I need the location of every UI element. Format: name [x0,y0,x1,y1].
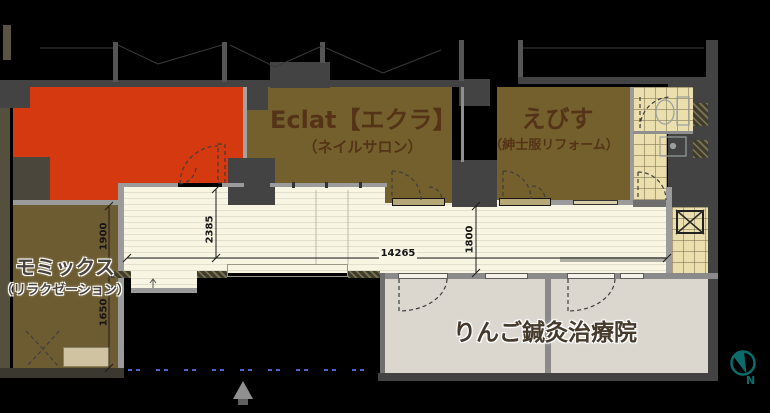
right-outer-wall [708,84,718,381]
ebisu-right-wall [630,87,634,203]
pillar-corridor-left [228,158,275,205]
clinic-bottom-wall [378,373,718,381]
wall-tick-3 [359,182,362,188]
momix-bottom-wall [0,368,124,378]
vacant-bottom-wall-a [124,183,178,187]
dim-corridor-width: 1800 [465,222,476,258]
wall-stub-e [518,40,523,77]
front-hatch-wall-b [197,271,227,278]
vacant-bottom-wall-b [222,183,244,187]
top-wall-mid [330,80,463,87]
pillar-left-mid [13,157,50,205]
entrance-marker-base [238,399,248,405]
right-outer-wall-top [706,40,718,84]
floor-plan: Eclat【エクラ】 （ネイルサロン） えびす （紳士服リフォーム） モミックス… [0,0,770,413]
wall-stub-a [113,42,118,82]
wall-tick-2 [325,182,328,188]
ebisu-door-sill [499,198,551,206]
momix-top-wall [13,200,120,205]
entrance-marker-triangle [233,381,253,399]
wall-stub-f [3,25,11,60]
compass-icon [732,352,755,375]
restroom-floor [633,87,693,133]
momix-category-label: （リラクゼーション） [0,279,132,298]
left-outer-wall [0,80,10,378]
compass-north-label: N [746,374,762,387]
eclat-bottom-wall [270,183,387,187]
restroom-partition [633,131,693,134]
top-wall-notch [270,62,330,88]
dim-corridor-length: 14265 [379,248,417,259]
eclat-door-sill [392,198,445,206]
window-lines [40,45,704,73]
corridor-elevator-divider [666,187,672,273]
dim-entrance-depth: 2385 [205,212,216,248]
dim-momix-lower: 1650 [99,295,110,331]
alcove-wall [131,288,197,293]
wall-stub-d [459,40,464,81]
main-entrance-mat [227,264,348,277]
clinic-door-sill-2 [567,273,615,279]
elevator-shaft [676,210,704,234]
clinic-left-wall [380,273,385,373]
eclat-name-label: Eclat【エクラ】 [270,108,455,133]
pillar-corridor-mid [452,160,497,207]
dim-momix-upper: 1900 [99,219,110,255]
momix-entry-step [63,347,110,367]
restroom-hall-floor [633,133,667,203]
top-wall-right [518,77,718,84]
eclat-category-label: （ネイルサロン） [270,140,455,156]
wall-tick-1 [292,182,295,188]
ebisu-category-label: （紳士服リフォーム） [488,139,620,153]
wall-stub-b [222,42,227,82]
pillar-eclat-top [247,83,268,110]
entrance-alcove-floor [131,273,197,288]
pillar-top-left [0,80,30,108]
front-hatch-wall-c [348,271,380,278]
elevator-front-ledge [560,257,666,262]
eclat-ebisu-partition [461,87,464,162]
ebisu-window-sill [573,200,618,205]
clinic-window-sill-2 [620,273,644,279]
clinic-door-sill-1 [398,273,448,279]
wall-stub-c [320,42,325,63]
ebisu-name-label: えびす [495,107,620,132]
clinic-window-sill-1 [485,273,528,279]
unit-eclat [247,87,452,187]
ringo-name-label: りんご鍼灸治療院 [428,313,662,347]
momix-name-label: モミックス [6,251,124,280]
